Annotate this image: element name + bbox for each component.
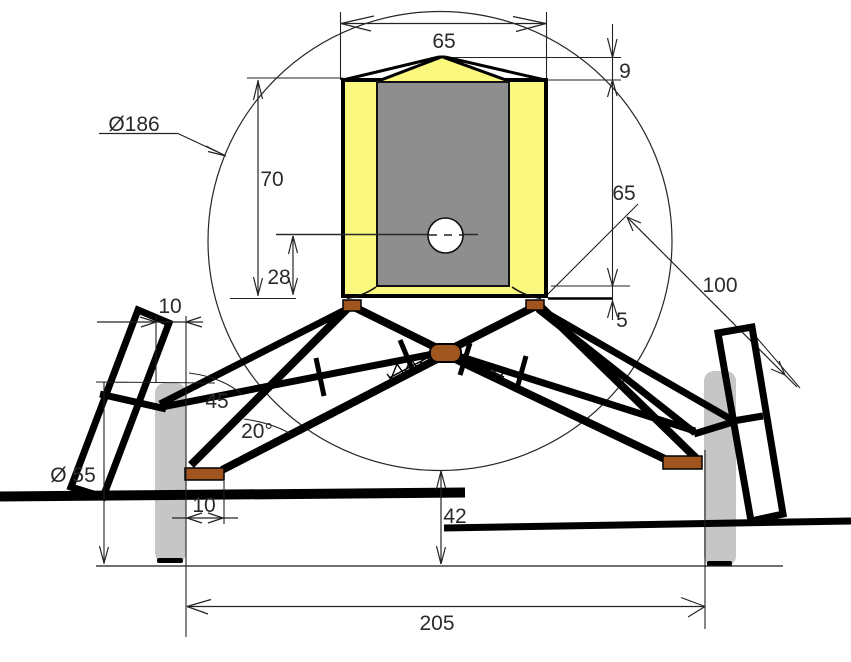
svg-text:9: 9 (619, 60, 631, 83)
svg-text:70: 70 (260, 168, 283, 191)
svg-text:Ø186: Ø186 (108, 113, 159, 136)
svg-text:45: 45 (205, 390, 228, 413)
svg-text:10: 10 (192, 494, 215, 517)
svg-text:205: 205 (419, 612, 454, 635)
svg-text:65: 65 (612, 182, 635, 205)
svg-text:5: 5 (616, 309, 628, 332)
svg-text:42: 42 (443, 505, 466, 528)
svg-text:10: 10 (158, 295, 181, 318)
svg-text:65: 65 (432, 30, 455, 53)
svg-text:28: 28 (267, 266, 290, 289)
svg-text:20°: 20° (241, 420, 273, 443)
svg-text:Ø 55: Ø 55 (50, 464, 96, 487)
svg-text:100: 100 (702, 274, 737, 297)
